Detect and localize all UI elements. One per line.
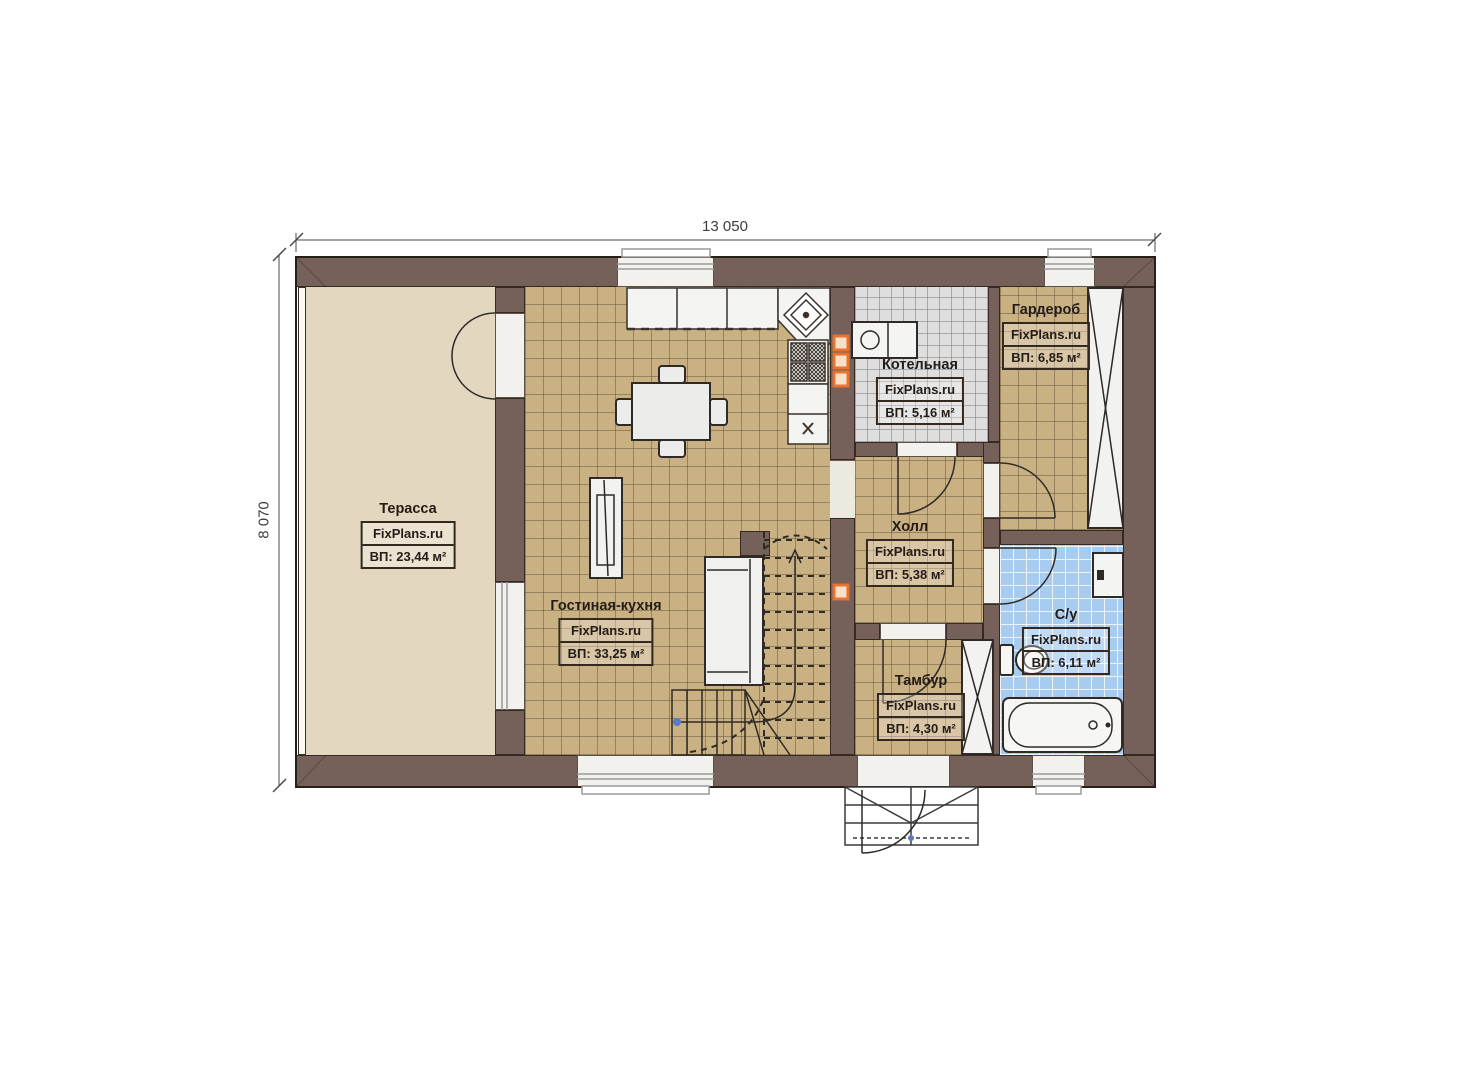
wall-stair-stub <box>740 531 770 556</box>
wall-bottom <box>296 755 1155 787</box>
room-area: ВП: 6,11 м² <box>1024 650 1108 673</box>
room-label-boiler-room: Котельная FixPlans.ru ВП: 5,16 м² <box>876 357 964 425</box>
room-title: Котельная <box>876 357 964 373</box>
watermark-fixplans: FixPlans.ru <box>1004 324 1088 345</box>
window-top-wardrobe <box>1044 257 1095 287</box>
window-bottom-living <box>577 755 714 787</box>
room-title: Холл <box>866 519 954 535</box>
window-terrace-living <box>495 582 525 710</box>
wall-boiler-wardrobe <box>988 287 1000 442</box>
window-top-living <box>617 257 714 287</box>
room-area-box: FixPlans.ru ВП: 6,85 м² <box>1002 322 1090 370</box>
watermark-fixplans: FixPlans.ru <box>868 541 952 562</box>
dimension-width-label: 13 050 <box>702 218 748 235</box>
wall-terrace-living-2 <box>495 398 525 582</box>
room-area-box: FixPlans.ru ВП: 23,44 м² <box>361 521 456 569</box>
room-area: ВП: 23,44 м² <box>363 544 454 567</box>
wall-terrace-living-1 <box>495 287 525 313</box>
room-label-hall: Холл FixPlans.ru ВП: 5,38 м² <box>866 519 954 587</box>
wall-wardrobe-bathroom <box>1000 530 1123 545</box>
room-title: Тамбур <box>877 673 965 689</box>
wall-living-hall <box>830 518 855 755</box>
room-label-bathroom: С/у FixPlans.ru ВП: 6,11 м² <box>1022 607 1110 675</box>
floor-plan-canvas: 13 050 8 070 Терасса FixPlans.ru ВП: 23,… <box>0 0 1473 1080</box>
room-area-box: FixPlans.ru ВП: 33,25 м² <box>559 618 654 666</box>
wall-right <box>1123 287 1155 755</box>
watermark-fixplans: FixPlans.ru <box>561 620 652 641</box>
room-area-box: FixPlans.ru ВП: 6,11 м² <box>1022 627 1110 675</box>
room-area-box: FixPlans.ru ВП: 5,38 м² <box>866 539 954 587</box>
room-title: Терасса <box>361 501 456 517</box>
terrace-left-edge <box>298 287 306 755</box>
room-title: Гардероб <box>1002 302 1090 318</box>
watermark-fixplans: FixPlans.ru <box>879 695 963 716</box>
room-label-wardrobe: Гардероб FixPlans.ru ВП: 6,85 м² <box>1002 302 1090 370</box>
wall-hall-vestibule-left <box>855 623 880 640</box>
wall-hall-vestibule-right <box>946 623 983 640</box>
door-opening-terrace <box>495 313 525 398</box>
door-opening-boiler <box>897 442 957 457</box>
watermark-fixplans: FixPlans.ru <box>1024 629 1108 650</box>
room-area: ВП: 4,30 м² <box>879 716 963 739</box>
room-area: ВП: 5,38 м² <box>868 562 952 585</box>
entrance-porch <box>845 787 978 845</box>
room-area: ВП: 33,25 м² <box>561 641 652 664</box>
room-title: Гостиная-кухня <box>550 598 661 614</box>
room-label-vestibule: Тамбур FixPlans.ru ВП: 4,30 м² <box>877 673 965 741</box>
floor-living-kitchen <box>525 287 830 755</box>
wall-kitchen-boiler <box>830 287 855 460</box>
room-area: ВП: 5,16 м² <box>878 400 962 423</box>
passage-living-hall <box>830 460 855 520</box>
door-opening-bathroom <box>983 548 1000 604</box>
door-opening-vestibule <box>880 623 946 640</box>
watermark-fixplans: FixPlans.ru <box>878 379 962 400</box>
room-area: ВП: 6,85 м² <box>1004 345 1088 368</box>
wall-boiler-hall-left <box>855 442 897 457</box>
room-label-living-kitchen: Гостиная-кухня FixPlans.ru ВП: 33,25 м² <box>550 598 661 666</box>
room-label-terrace: Терасса FixPlans.ru ВП: 23,44 м² <box>361 501 456 569</box>
wall-hall-right-3 <box>983 604 1000 755</box>
wall-top <box>296 257 1155 287</box>
watermark-fixplans: FixPlans.ru <box>363 523 454 544</box>
wall-hall-right-2 <box>983 518 1000 548</box>
window-bottom-bathroom <box>1032 755 1085 787</box>
entrance-door-opening <box>857 755 950 787</box>
room-area-box: FixPlans.ru ВП: 5,16 м² <box>876 377 964 425</box>
dimension-height-label: 8 070 <box>256 501 273 539</box>
wall-hall-right-1 <box>983 442 1000 463</box>
room-title: С/у <box>1022 607 1110 623</box>
wall-terrace-living-3 <box>495 710 525 755</box>
room-area-box: FixPlans.ru ВП: 4,30 м² <box>877 693 965 741</box>
door-opening-wardrobe <box>983 463 1000 518</box>
